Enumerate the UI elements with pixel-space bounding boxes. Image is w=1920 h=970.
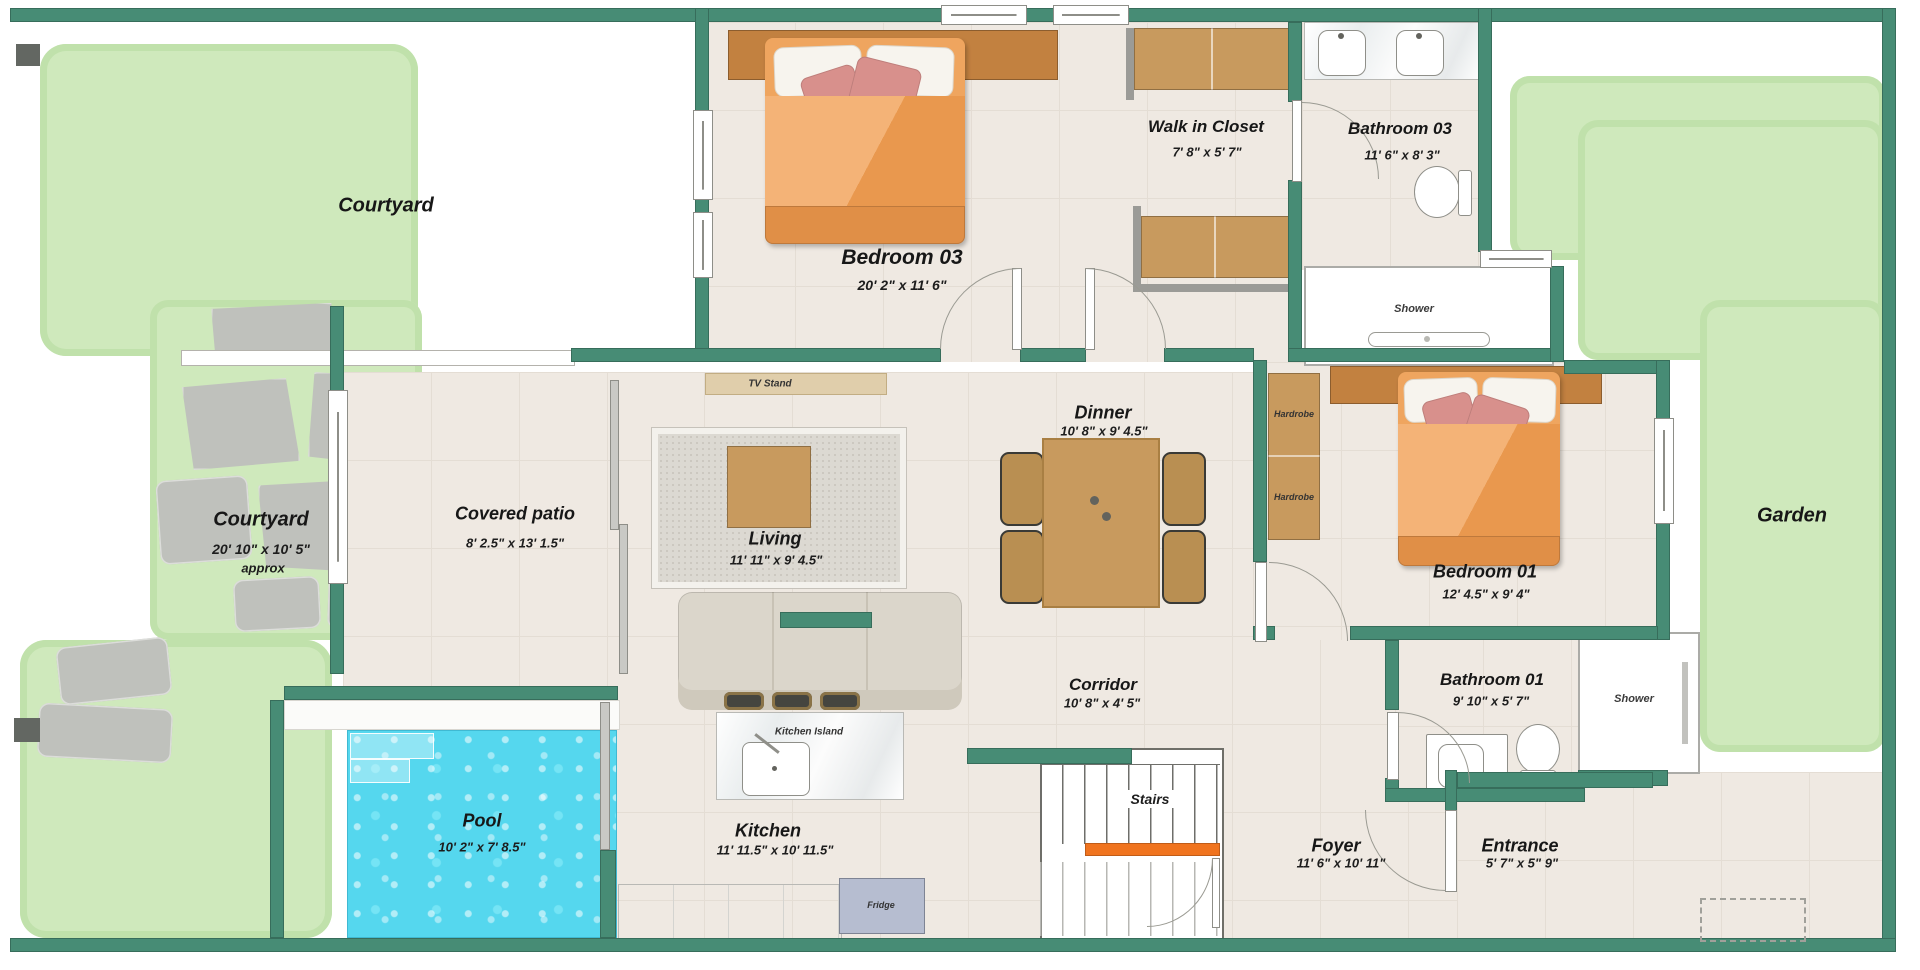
wall-bath03-bottom (1288, 348, 1564, 362)
toilet (1516, 724, 1560, 774)
pool-step (350, 733, 434, 759)
bedroom01-dims: 12' 4.5" x 9' 4" (1442, 587, 1529, 602)
dinner-label: Dinner (1074, 403, 1131, 424)
faucet (1416, 33, 1422, 39)
door-leaf-bathroom03 (1292, 100, 1302, 182)
foyer-dims: 11' 6" x 10' 11" (1297, 856, 1386, 871)
table-decor (1102, 512, 1111, 521)
bar-stool (820, 692, 860, 710)
bar-stool (772, 692, 812, 710)
courtyard-paved-note: approx (241, 561, 284, 576)
hardrobe-bottom-label: Hardrobe (1274, 492, 1314, 502)
paver-patch (37, 703, 174, 764)
wall-bedroom01-bottom (1350, 626, 1658, 640)
shower01-glass (1682, 662, 1688, 744)
entrance-label: Entrance (1481, 836, 1558, 857)
table-decor (1090, 496, 1099, 505)
wall-closet-right (1288, 22, 1302, 102)
window (1480, 250, 1552, 268)
wall-outer-right (1882, 8, 1896, 952)
living-dims: 11' 11" x 9' 4.5" (730, 553, 822, 568)
window (328, 390, 348, 584)
bathroom03-dims: 11' 6" x 8' 3" (1364, 148, 1439, 163)
bedroom03-dims: 20' 2" x 11' 6" (858, 277, 947, 293)
hardrobe-cabinet (1268, 373, 1320, 540)
bathroom01-dims: 9' 10" x 5' 7" (1453, 694, 1529, 709)
wall-kitchen-left (600, 850, 616, 938)
walk-in-closet-label: Walk in Closet (1148, 117, 1264, 137)
toilet-tank (1458, 170, 1472, 216)
closet-wall (1126, 28, 1134, 100)
window (941, 5, 1027, 25)
wall-bath03-right (1478, 8, 1492, 252)
wall-bedroom01-top-right (1564, 360, 1670, 374)
window (1654, 418, 1674, 524)
dining-chair (1162, 530, 1206, 604)
shower01-label: Shower (1614, 693, 1654, 705)
sliding-door-panel (600, 702, 610, 850)
pool-step (350, 759, 410, 783)
closet-wall (1133, 284, 1291, 292)
utility-unit (16, 44, 40, 66)
corridor-dims: 10' 8" x 4' 5" (1064, 696, 1140, 711)
dining-table (1042, 438, 1160, 608)
walk-in-closet-dims: 7' 8" x 5' 7" (1172, 145, 1241, 160)
shower03-drain-hole (1424, 336, 1430, 342)
bathroom01-label: Bathroom 01 (1440, 670, 1544, 690)
closet-wall (1133, 206, 1141, 292)
wall-entrance-top (1457, 772, 1653, 788)
wall-bedroom01-left (1253, 360, 1267, 562)
foyer-label: Foyer (1311, 836, 1360, 857)
dining-chair (1000, 452, 1044, 526)
utility-unit (14, 718, 40, 742)
kitchen-island-label: Kitchen Island (775, 727, 843, 738)
paver-stone (233, 576, 322, 632)
dining-chair (1000, 530, 1044, 604)
window (1053, 5, 1129, 25)
door-leaf-entrance (1445, 810, 1457, 892)
garden-label: Garden (1757, 505, 1827, 528)
wall-bathroom01-bottom (1385, 788, 1585, 802)
bedroom01-label: Bedroom 01 (1433, 562, 1537, 583)
paver-patch (55, 636, 172, 705)
door-leaf-bedroom01 (1255, 562, 1267, 642)
kitchen-counter (618, 884, 842, 940)
wall-living-top (571, 348, 941, 362)
wall-bathroom01-left (1385, 640, 1399, 710)
window (693, 110, 713, 200)
tv-stand-label: TV Stand (748, 379, 791, 390)
floor-plan: Courtyard Courtyard 20' 10" x 10' 5" app… (0, 0, 1920, 970)
toilet (1414, 166, 1460, 218)
bed03-duvet (765, 96, 965, 208)
low-wall (181, 350, 575, 366)
closet-cabinet (1134, 28, 1290, 90)
living-label: Living (749, 529, 802, 550)
sliding-door-panel (619, 524, 628, 674)
bathroom03-label: Bathroom 03 (1348, 119, 1452, 139)
wall-stairs-top (967, 748, 1132, 764)
wall-outer-bottom (10, 938, 1896, 952)
pool-deck (284, 700, 620, 730)
stairs-landing-strip (1085, 843, 1220, 856)
wall-living-top (1164, 348, 1254, 362)
wall-shower03-right (1550, 266, 1564, 362)
dinner-dims: 10' 8" x 9' 4.5" (1060, 424, 1147, 439)
closet-cabinet (1141, 216, 1289, 278)
window (693, 212, 713, 278)
dining-chair (1162, 452, 1206, 526)
stairs-label: Stairs (1124, 790, 1177, 808)
courtyard-paved-label: Courtyard (213, 509, 309, 532)
pool-dims: 10' 2" x 7' 8.5" (438, 840, 525, 855)
shower03-label: Shower (1394, 303, 1434, 315)
bedroom03-label: Bedroom 03 (841, 246, 962, 270)
fridge-label: Fridge (867, 900, 895, 910)
sofa (678, 592, 962, 710)
hardrobe-top-label: Hardrobe (1274, 409, 1314, 419)
wall-stub-living (780, 612, 872, 628)
island-drain (772, 766, 777, 771)
entrance-dims: 5' 7" x 5" 9" (1486, 856, 1558, 871)
corridor-label: Corridor (1069, 675, 1137, 695)
covered-patio-dims: 8' 2.5" x 13' 1.5" (466, 536, 564, 551)
wall-living-top (1020, 348, 1086, 362)
patio-floor (343, 372, 618, 688)
bar-stool (724, 692, 764, 710)
courtyard-top-label: Courtyard (338, 195, 434, 218)
courtyard-paved-dims: 20' 10" x 10' 5" (212, 541, 310, 557)
paver-stone (182, 378, 300, 470)
sliding-door-panel (610, 380, 619, 530)
wall-pool-top (284, 686, 618, 700)
kitchen-label: Kitchen (735, 821, 801, 842)
covered-patio-label: Covered patio (455, 504, 575, 525)
door-leaf-stairs (1212, 858, 1220, 928)
kitchen-dims: 11' 11.5" x 10' 11.5" (717, 843, 834, 858)
coffee-table (727, 446, 811, 528)
entrance-step (1700, 898, 1806, 942)
wall-closet-right (1288, 180, 1302, 350)
faucet (1338, 33, 1344, 39)
bed03-foot (765, 206, 965, 244)
tv-stand (705, 373, 887, 395)
pool-label: Pool (463, 811, 502, 832)
wall-pool-left (270, 700, 284, 938)
bed01-duvet (1398, 424, 1560, 536)
